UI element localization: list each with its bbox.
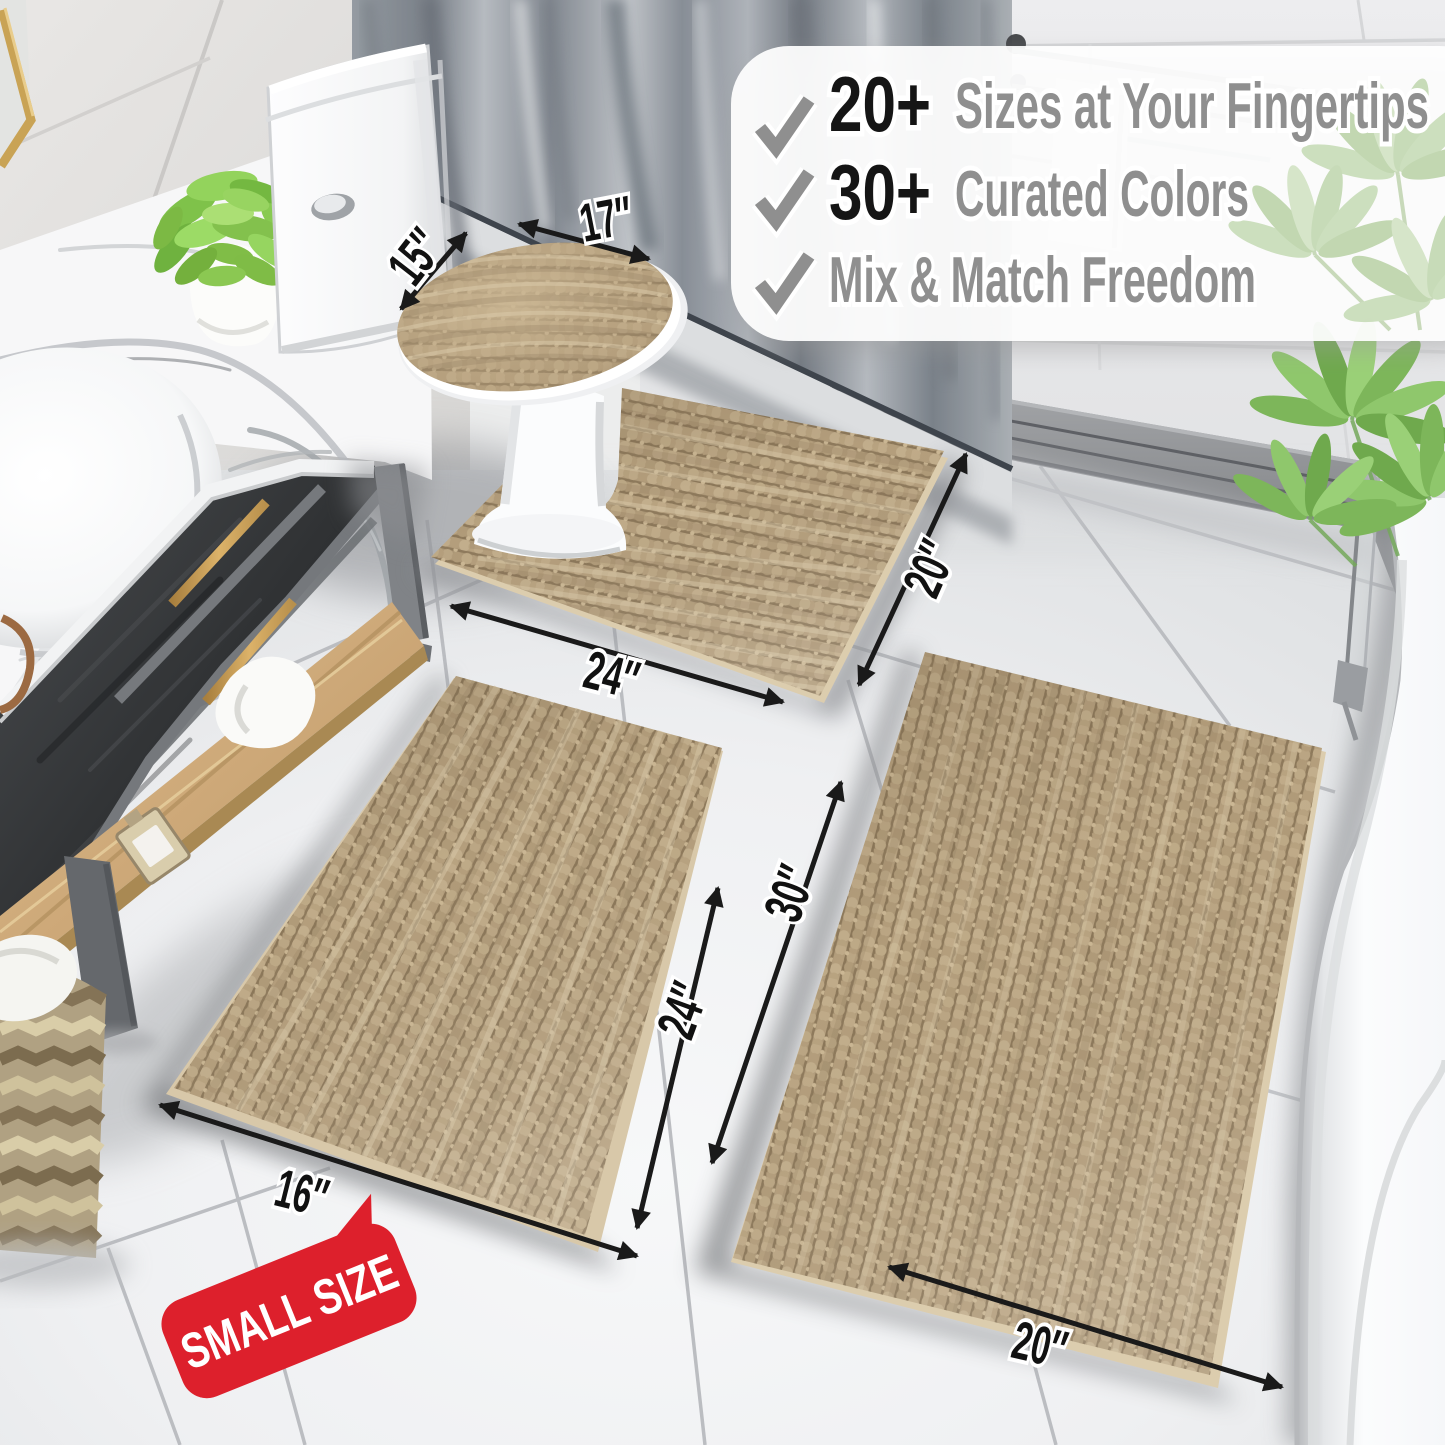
svg-text:Sizes at Your Fingertips: Sizes at Your Fingertips (955, 69, 1429, 142)
svg-text:Mix & Match Freedom: Mix & Match Freedom (829, 243, 1256, 316)
svg-text:Curated Colors: Curated Colors (955, 157, 1249, 230)
svg-text:20+: 20+ (829, 60, 931, 148)
svg-text:30+: 30+ (829, 148, 931, 236)
